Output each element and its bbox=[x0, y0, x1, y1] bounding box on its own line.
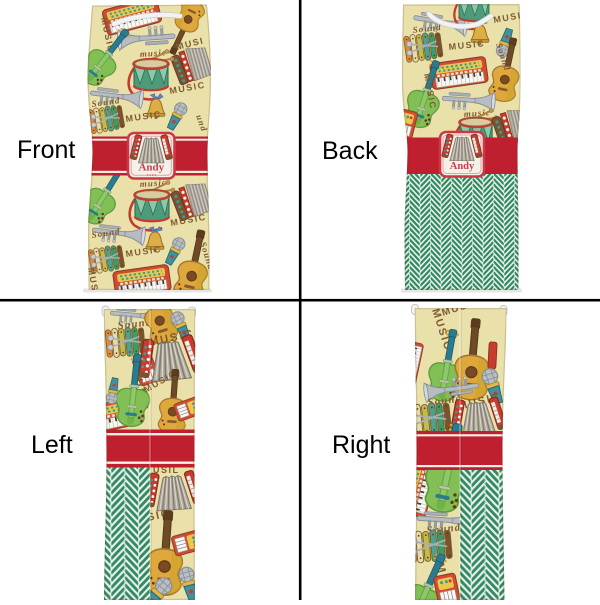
svg-text:Left: Left bbox=[31, 431, 73, 459]
svg-text:Andy: Andy bbox=[138, 162, 164, 174]
svg-text:Front: Front bbox=[17, 136, 75, 164]
svg-text:Andy: Andy bbox=[450, 161, 475, 172]
svg-text:Back: Back bbox=[322, 137, 378, 165]
svg-text:Right: Right bbox=[332, 431, 390, 459]
